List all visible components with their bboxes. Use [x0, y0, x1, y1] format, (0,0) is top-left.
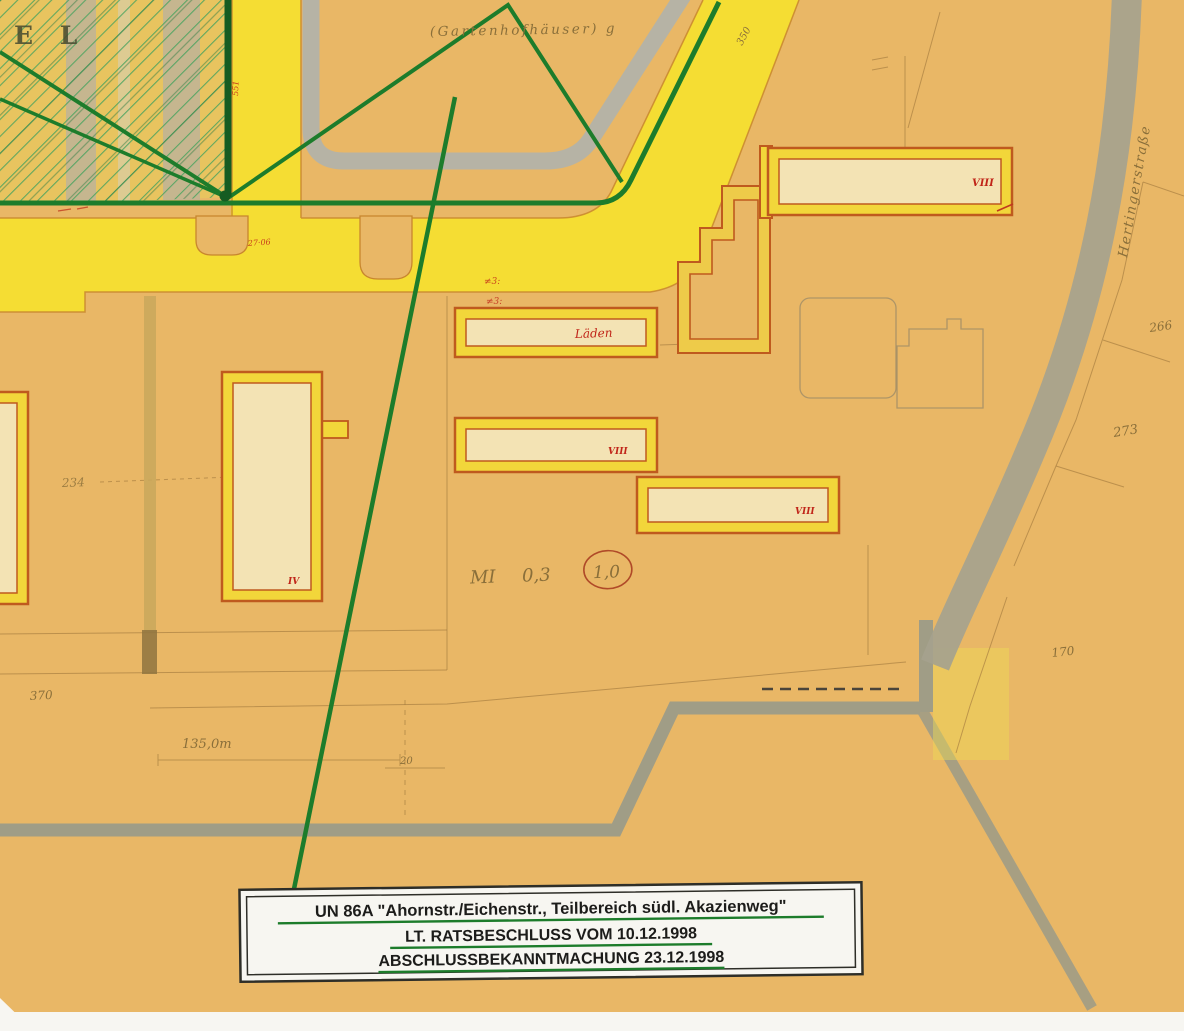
building-label-viii-1: VIII — [972, 178, 994, 189]
road-mark-2706: 27·06 — [247, 237, 271, 248]
building-laden: Läden — [455, 308, 657, 357]
path-strip-dark — [142, 630, 157, 674]
zoning-map-scan: E L — [0, 0, 1184, 1031]
zoning-ratio: 0,3 — [522, 565, 551, 587]
dim-20: 20 — [399, 756, 413, 767]
dim-170: 170 — [1051, 644, 1076, 660]
path-strip — [144, 296, 156, 632]
map-canvas: E L — [0, 0, 1184, 1031]
hatched-area: E L — [0, 0, 232, 206]
building-label-viii-3: VIII — [795, 507, 815, 517]
dim-370: 370 — [29, 688, 53, 703]
driveway-notch — [360, 216, 412, 279]
hash-mark-1: ≠3: — [484, 277, 500, 287]
green-junction — [220, 191, 231, 202]
building-label-iv: IV — [287, 577, 300, 587]
zoning-mi: MI — [469, 567, 497, 589]
mark-551: 551 — [231, 80, 241, 96]
building-b1: VIII — [760, 146, 1013, 218]
dim-234: 234 — [61, 475, 85, 490]
plot-label: (Gartenhofhäuser) g — [430, 21, 617, 40]
driveway-notch — [196, 216, 248, 255]
building-label-viii-2: VIII — [608, 447, 628, 457]
building-b7 — [0, 392, 28, 604]
laden-label: Läden — [574, 326, 613, 341]
building-b5: VIII — [637, 477, 839, 533]
title-line-2: LT. RATSBESCHLUSS VOM 10.12.1998 — [405, 925, 697, 946]
building-b4: VIII — [455, 418, 657, 472]
zoning-circled-value: 1,0 — [593, 562, 621, 583]
hash-mark-2: ≠3: — [486, 297, 502, 307]
dim-135m: 135,0m — [182, 737, 232, 752]
corner-letters: E L — [14, 21, 86, 50]
title-box: UN 86A "Ahornstr./Eichenstr., Teilbereic… — [239, 882, 862, 982]
